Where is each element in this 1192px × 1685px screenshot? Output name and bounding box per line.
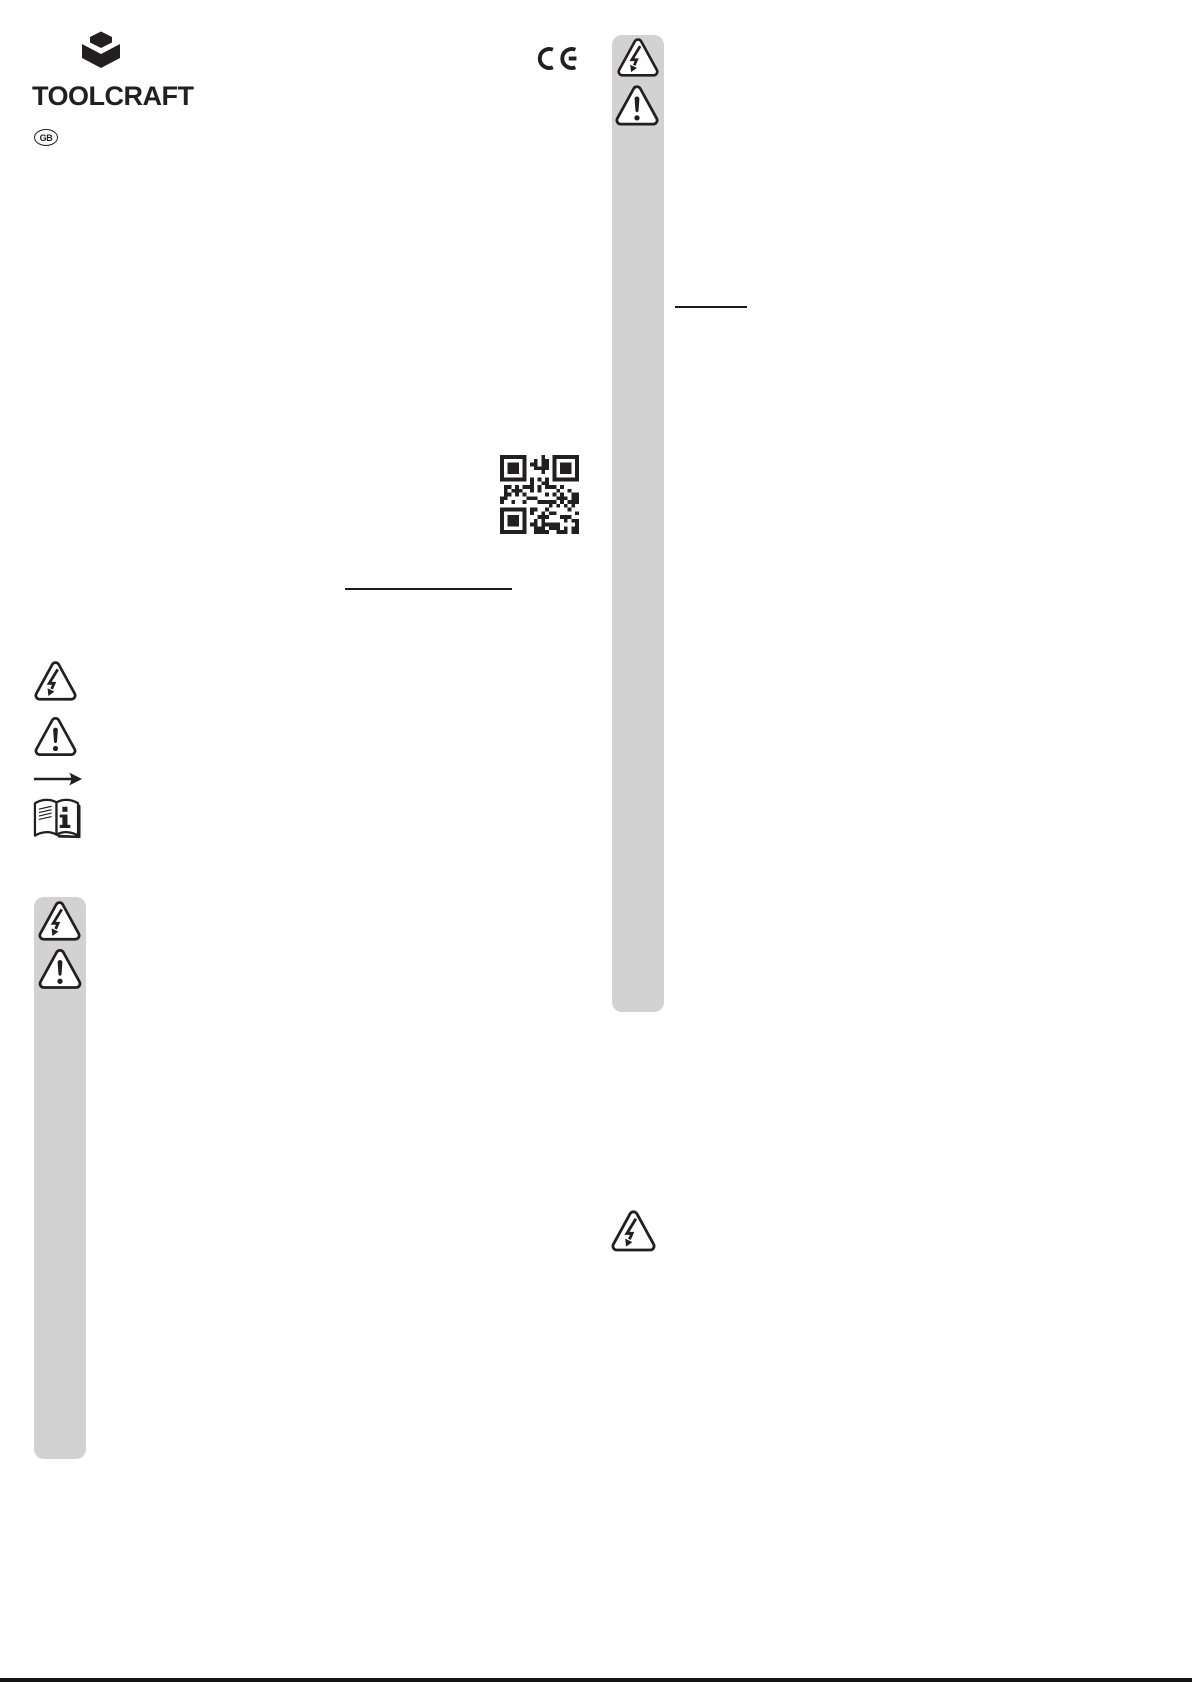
language-badge-label: GB [40,133,53,143]
right-safety-panel [612,35,664,1012]
exclamation-warning-triangle-icon [33,716,78,758]
ce-mark-icon [536,42,581,75]
language-badge-gb: GB [34,129,58,146]
qr-code [500,455,579,534]
exclamation-warning-triangle-icon [614,84,660,128]
exclamation-warning-triangle-icon [37,948,83,991]
high-voltage-warning-triangle-icon [33,659,78,704]
footer-rule [0,1678,1192,1682]
high-voltage-warning-triangle-icon [37,900,82,943]
underline-rule-mid [345,588,512,590]
high-voltage-warning-triangle-icon [616,37,660,79]
brand-wordmark: TOOLCRAFT [32,81,193,112]
high-voltage-warning-triangle-icon [610,1209,657,1254]
manual-page: TOOLCRAFT GB [0,0,1192,1685]
read-manual-booklet-icon [32,795,81,841]
toolcraft-logo-icon [81,31,121,72]
arrow-right-icon [33,769,83,789]
underline-rule-right [675,306,747,308]
